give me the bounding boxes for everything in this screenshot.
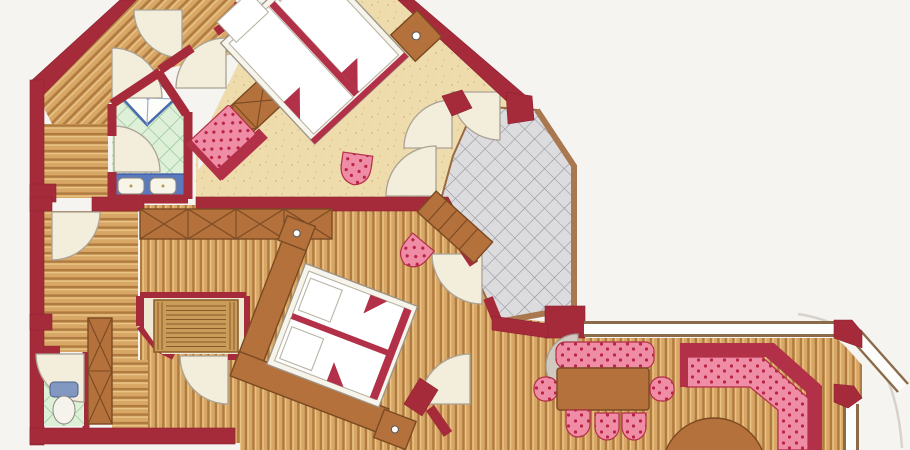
dining-chair-bottom [595,413,619,440]
wall-block-terrace-top [506,92,534,124]
window-frame-line [856,404,859,450]
wall-block-living [545,306,585,338]
sink-drain-icon [130,185,133,188]
dining-bench [556,342,654,368]
window-glass-top [584,324,836,334]
wall-bottom [30,428,235,444]
room-sauna [144,298,244,354]
wall-stub [30,314,52,330]
sofa-armrest [680,343,688,387]
toilet-bowl [53,396,75,424]
dining-table [557,368,649,410]
floor-plan-canvas [0,0,910,450]
window-glass-right [846,404,856,450]
window-frame-line [584,321,836,324]
dining-chair-right [650,377,674,401]
dining-chair-bottom [566,410,590,437]
wall-left [30,80,44,445]
window-frame-line [584,334,836,337]
floor-plan-stage [0,0,910,450]
sauna-bench [154,300,238,352]
sink-drain-icon [162,185,165,188]
toilet-tank [50,382,78,397]
dining-chair-left [534,377,558,401]
wall-corridor-a [30,197,52,211]
window-frame-line [843,404,846,450]
dining-chair-bottom [622,413,646,440]
